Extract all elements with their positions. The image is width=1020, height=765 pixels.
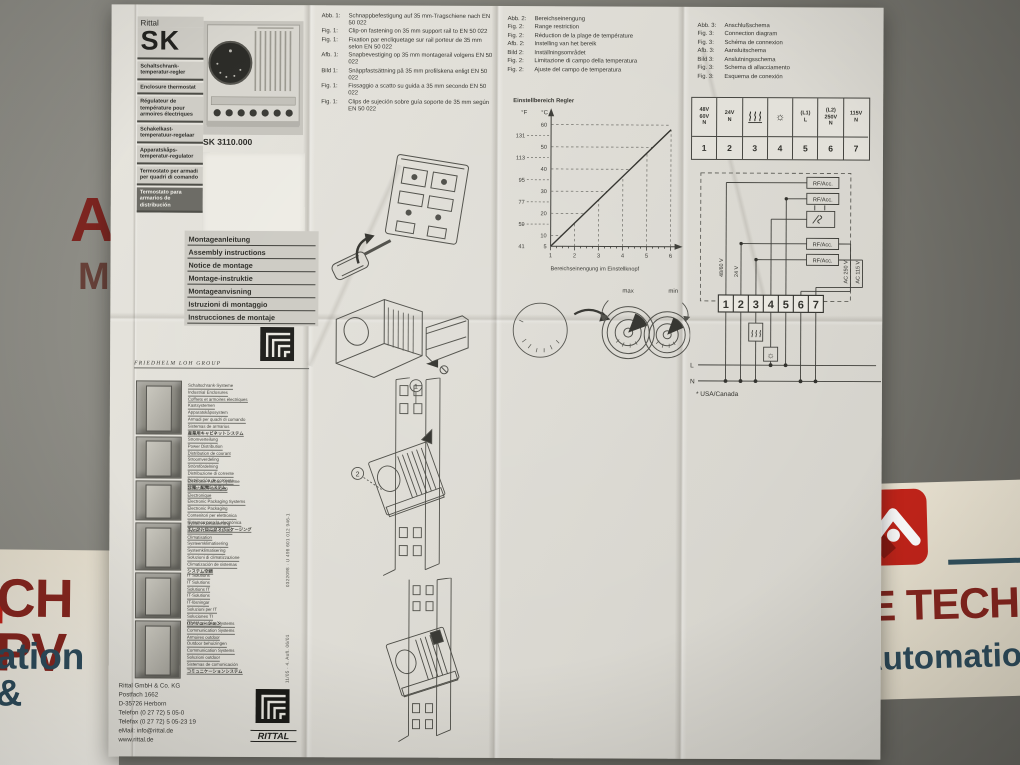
svg-text:41: 41 <box>518 244 524 250</box>
fig2-caption-row-text: Réduction de la plage de température <box>534 33 681 41</box>
svg-text:3: 3 <box>597 253 600 259</box>
address-line: Telefax (0 27 72) 5 05-23 19 <box>118 718 250 728</box>
instruction-title: Montageanleitung <box>188 233 316 247</box>
fig3-caption-row-text: Esquema de conexión <box>724 74 871 82</box>
line-l-label: L <box>690 362 694 369</box>
fig2-caption-row: Fig. 2:Ajuste del campo de temperatura <box>507 67 681 75</box>
thermostat-contact-icon <box>807 211 835 227</box>
fig3-caption-row: Fig. 3:Schéma de connexion <box>697 40 871 48</box>
usa-canada-note: * USA/Canada <box>696 391 739 398</box>
fig1-caption-row: Afb. 1:Snapbevestiging op 35 mm montager… <box>321 53 495 68</box>
fig2-caption-row-text: Ajuste del campo de temperatura <box>534 67 681 75</box>
heater-icon <box>752 330 761 337</box>
svg-text:RF/Acc.: RF/Acc. <box>813 258 833 264</box>
fig1-caption-row: Fig. 1:Fixation par encliquetage sur rai… <box>321 37 495 52</box>
terminal-number: 6 <box>818 137 843 159</box>
svg-text:7: 7 <box>813 299 819 311</box>
y-left-unit: °F <box>521 110 527 116</box>
fig3-caption-row: Fig. 3:Esquema de conexión <box>697 74 871 82</box>
product-name: Schakelkast-temperatuur-regelaar <box>137 124 203 143</box>
product-name: Enclosure thermostat <box>137 82 203 95</box>
fan-icon: ☼ <box>775 112 785 123</box>
fig2-caption-row-text: Bereichseinengung <box>535 16 682 24</box>
svg-text:1: 1 <box>549 253 552 259</box>
figure-profile-mounted <box>370 577 485 745</box>
svg-text:10: 10 <box>540 233 546 239</box>
address-line: eMail: info@rittal.de <box>118 727 250 737</box>
fan-icon: ☼ <box>766 350 774 360</box>
fig1-caption-row: Abb. 1:Schnappbefestigung auf 35 mm-Trag… <box>322 13 496 28</box>
instruction-title: Assembly instructions <box>188 246 316 260</box>
fold-crease <box>488 6 503 758</box>
product-photo <box>203 21 303 135</box>
fig3-caption-row: Fig. 3:Connection diagram <box>698 31 872 39</box>
terminal-number: 1 <box>692 137 717 159</box>
fig3-caption-row-label: Fig. 3: <box>698 31 725 38</box>
product-name: Termostato para armarios de distribución <box>137 187 203 213</box>
blank-panel <box>203 153 305 235</box>
rittal-logo-bottom: RITTAL <box>250 689 296 742</box>
fig2-caption-row-label: Fig. 2: <box>507 33 534 40</box>
fig3-caption-row-text: Anslutningsschema <box>724 57 871 65</box>
terminal-number: 4 <box>768 137 793 159</box>
fig3-caption-row-label: Abb. 3: <box>698 23 725 30</box>
fig1-caption-row: Fig. 1:Clips de sujeción sobre guía sopo… <box>321 99 495 114</box>
masthead: Rittal SK Schaltschrank-temperatur-regle… <box>137 16 204 215</box>
svg-text:1: 1 <box>723 299 729 311</box>
product-name: Termostato per armadi per quadri di coma… <box>137 166 203 185</box>
svg-text:RF/Acc.: RF/Acc. <box>813 181 833 187</box>
fig3-caption-row-label: Fig. 3: <box>697 74 724 81</box>
category-thumb-electronics <box>135 480 181 520</box>
terminal-cell-2: 24VN <box>717 98 742 137</box>
publisher-address: Rittal GmbH & Co. KGPostfach 1662D-35726… <box>118 682 250 745</box>
instruction-title: Notice de montage <box>187 259 315 273</box>
terminal-cell-1: 48V60VN <box>692 98 717 137</box>
insert-arrow-icon <box>426 360 438 368</box>
svg-text:max: max <box>622 289 633 295</box>
fig1-caption-row-text: Clips de sujeción sobre guía soporte de … <box>348 99 495 114</box>
svg-text:5: 5 <box>783 299 789 311</box>
svg-text:20: 20 <box>540 211 546 217</box>
heater-icon <box>748 111 762 123</box>
group-header: FRIEDHELM LOH GROUP <box>134 360 309 369</box>
watermark-bottom-left-blue: ation & <box>0 637 120 712</box>
fig3-caption-row-text: Aansluitschema <box>724 48 871 56</box>
print-code-2: 11/05 · 4. Aufl. 06/01 <box>285 603 290 683</box>
category-lines-enclosures: Schaltschrank-SystemeIndustrial Enclosur… <box>188 383 306 438</box>
fig3-caption-row-text: Schema di allacciamento <box>724 65 871 73</box>
series-name: SK <box>137 27 203 59</box>
wire-label-250: AC 250 V <box>843 260 849 284</box>
fig3-caption-row-text: Connection diagram <box>725 31 872 39</box>
fig1-caption-row-text: Fissaggio a scatto su guida a 35 mm seco… <box>348 84 495 99</box>
svg-text:min: min <box>668 289 678 295</box>
fig2-caption-row-label: Fig. 2: <box>507 67 534 74</box>
svg-text:6: 6 <box>798 299 804 311</box>
fig1-caption-block: Abb. 1:Schnappbefestigung auf 35 mm-Trag… <box>321 13 495 115</box>
fig1-caption-row-text: Schnappbefestigung auf 35 mm-Tragschiene… <box>349 13 496 28</box>
fig3-caption-row-label: Afb. 3: <box>697 48 724 55</box>
logo-rule <box>948 557 1020 564</box>
dial-max: max <box>600 288 654 358</box>
svg-text:2: 2 <box>573 253 576 259</box>
setting-range-line <box>551 129 672 247</box>
fig1-caption-row-label: Abb. 1: <box>322 13 349 27</box>
svg-text:4: 4 <box>621 254 625 260</box>
instruction-title: Montageanvisning <box>187 285 315 299</box>
photo-stage: AE Ma CH PV ation & E TECH Automatio Rit… <box>0 0 1020 765</box>
fig1-caption-row-label: Fig. 1: <box>321 99 348 113</box>
terminal-cell-5: (L1)L <box>793 98 818 137</box>
instruction-title: Instrucciones de montaje <box>187 311 315 325</box>
address-line: Telefon (0 27 72) 5 05-0 <box>119 709 251 719</box>
fig2-caption-row-label: Afb. 2: <box>507 41 534 48</box>
y-right-unit: °C <box>541 110 548 116</box>
fig3-caption-row-label: Fig. 3: <box>697 40 724 47</box>
svg-text:30: 30 <box>541 189 547 195</box>
fig3-caption-row: Abb. 3:Anschlußschema <box>698 23 872 31</box>
category-thumb-power <box>136 436 182 478</box>
terminal-table: 48V60VN 24VN ☼ (L1)L (L2)250VN 115VN <box>691 97 870 161</box>
range-chart: °F °C 60 50 40 30 20 10 5 131 113 95 77 … <box>506 106 689 279</box>
watermark-bottom-right-blue: Automatio <box>858 638 1020 676</box>
dial-min: min <box>644 289 690 358</box>
fig3-caption-block: Abb. 3:AnschlußschemaFig. 3:Connection d… <box>697 23 871 83</box>
fig3-caption-row: Bild 3:Anslutningsschema <box>697 57 871 65</box>
fig1-caption-row-text: Snäppfastsättning på 35 mm profilskena e… <box>348 68 495 83</box>
terminal-cell-6: (L2)250VN <box>819 98 844 137</box>
fig2-caption-row: Abb. 2:Bereichseinengung <box>508 16 682 24</box>
fig1-caption-row-label: Afb. 1: <box>321 53 348 67</box>
fig2-caption-row-text: Limitazione di campo della temperatura <box>534 59 681 67</box>
terminal-cell-4: ☼ <box>768 98 793 137</box>
watermark-bottom-right-red: E TECH <box>867 582 1020 629</box>
wire-label-115: AC 115 V <box>855 260 861 283</box>
svg-text:113: 113 <box>516 155 525 161</box>
backdrop-mat-left: CH PV ation & <box>0 549 121 765</box>
wire-label-24: 24 V <box>734 266 740 278</box>
rittal-logo-icon <box>260 327 294 361</box>
fig2-caption-row: Afb. 2:Instelling van het bereik <box>507 41 681 49</box>
wire-label-4860: 48/60 V <box>719 258 725 277</box>
figure-setting-dials: max min <box>504 282 690 373</box>
terminal-number: 7 <box>844 138 868 160</box>
terminal-number: 3 <box>743 137 768 159</box>
svg-text:40: 40 <box>541 167 547 173</box>
svg-text:131: 131 <box>516 133 525 139</box>
fig3-caption-row-label: Fig. 3: <box>697 65 724 72</box>
model-number: SK 3110.000 <box>203 137 252 147</box>
svg-text:3: 3 <box>753 299 759 311</box>
fig2-caption-row-text: Range restriction <box>535 25 682 33</box>
figure-clip-on-rail <box>322 293 474 388</box>
svg-text:5: 5 <box>645 254 648 260</box>
product-name: Apparatskåps-temperatur-regulator <box>137 145 203 164</box>
fig1-caption-row-text: Snapbevestiging op 35 mm montagerail vol… <box>348 53 495 68</box>
address-line: www.rittal.de <box>118 736 250 746</box>
svg-text:5: 5 <box>543 244 546 250</box>
category-thumb-communication <box>135 620 181 678</box>
instruction-title: Montage-instruktie <box>187 272 315 286</box>
figure-profile-mounting: 1 2 <box>347 377 480 578</box>
terminal-cell-7: 115VN <box>844 99 868 138</box>
diagram-terminal-strip: 1 2 3 4 5 6 7 <box>718 295 823 312</box>
product-name: Schaltschrank-temperatur-regler <box>137 61 203 80</box>
figure-screwdriver-release <box>328 145 491 294</box>
svg-text:4: 4 <box>768 299 775 311</box>
category-thumb-climate <box>135 522 181 570</box>
product-name: Régulateur de température pour armoires … <box>137 97 203 123</box>
fig1-caption-row: Fig. 1:Fissaggio a scatto su guida a 35 … <box>321 83 495 98</box>
fig2-caption-row: Fig. 2:Limitazione di campo della temper… <box>507 58 681 66</box>
fig1-caption-row-label: Fig. 1: <box>322 29 349 36</box>
fig3-caption-row-text: Schéma de connexion <box>724 40 871 48</box>
svg-text:59: 59 <box>518 222 524 228</box>
fig2-caption-row-label: Fig. 2: <box>507 58 534 65</box>
category-thumb-enclosures <box>136 380 182 434</box>
svg-text:2: 2 <box>356 471 360 478</box>
chart-x-label: Bereichseinengung im Einstellknopf <box>550 266 639 272</box>
fig3-caption-row-label: Bild 3: <box>697 57 724 64</box>
print-code-1: 0322098 · U 498 601 012 946-1 <box>285 483 290 587</box>
line-n-label: N <box>690 378 695 385</box>
svg-text:60: 60 <box>541 123 547 129</box>
svg-text:RF/Acc.: RF/Acc. <box>813 197 833 203</box>
fig2-caption-block: Abb. 2:BereichseinengungFig. 2:Range res… <box>507 16 681 76</box>
fig1-caption-row-text: Fixation par encliquetage sur rail porte… <box>348 37 495 52</box>
fig3-caption-row-text: Anschlußschema <box>725 23 872 31</box>
terminal-cell-3 <box>743 98 768 137</box>
category-thumb-it <box>135 572 181 618</box>
fig2-caption-row: Fig. 2:Range restriction <box>508 25 682 33</box>
fig2-caption-row-text: Inställningsområdet <box>534 50 681 58</box>
callout-1: 1 <box>410 380 422 404</box>
screw-icon <box>440 366 448 374</box>
terminal-number: 5 <box>793 137 818 159</box>
fig1-caption-row-label: Fig. 1: <box>321 83 348 97</box>
svg-text:95: 95 <box>519 178 525 184</box>
fig1-caption-row-label: Fig. 1: <box>321 37 348 51</box>
fig2-caption-row-text: Instelling van het bereik <box>534 42 681 50</box>
fig2-caption-row: Bild 2:Inställningsområdet <box>507 50 681 58</box>
rittal-wordmark: RITTAL <box>250 730 296 742</box>
fig1-caption-row: Bild 1:Snäppfastsättning på 35 mm profil… <box>321 68 495 83</box>
fig2-caption-row-label: Abb. 2: <box>508 16 535 23</box>
fig1-caption-row-label: Bild 1: <box>321 68 348 82</box>
instruction-title: Istruzioni di montaggio <box>187 298 315 312</box>
svg-text:6: 6 <box>669 254 672 260</box>
svg-text:RF/Acc.: RF/Acc. <box>813 242 833 248</box>
rittal-logo-icon <box>256 689 290 723</box>
connection-diagram: 1 2 3 4 5 6 7 <box>688 165 885 402</box>
instruction-title-list: MontageanleitungAssembly instructionsNot… <box>184 231 318 327</box>
category-line: コミュニケーションシステム <box>187 668 243 675</box>
svg-text:77: 77 <box>519 200 525 206</box>
fig2-caption-row-label: Fig. 2: <box>508 25 535 32</box>
fig3-caption-row: Fig. 3:Schema di allacciamento <box>697 65 871 73</box>
fig2-caption-row: Fig. 2:Réduction de la plage de températ… <box>507 33 681 41</box>
fig3-caption-row: Afb. 3:Aansluitschema <box>697 48 871 56</box>
terminal-number: 2 <box>717 137 742 159</box>
svg-text:2: 2 <box>738 299 744 311</box>
svg-text:50: 50 <box>541 145 547 151</box>
chart-title: Einstellbereich Regler <box>513 98 574 104</box>
fig2-caption-row-label: Bild 2: <box>507 50 534 57</box>
product-name-list: Schaltschrank-temperatur-reglerEnclosure… <box>137 61 204 213</box>
svg-text:1: 1 <box>414 384 418 391</box>
fig1-caption-row: Fig. 1:Clip-on fastening on 35 mm suppor… <box>322 29 496 37</box>
fig1-caption-row-text: Clip-on fastening on 35 mm support rail … <box>349 29 496 37</box>
instruction-sheet: Rittal SK Schaltschrank-temperatur-regle… <box>108 4 883 759</box>
